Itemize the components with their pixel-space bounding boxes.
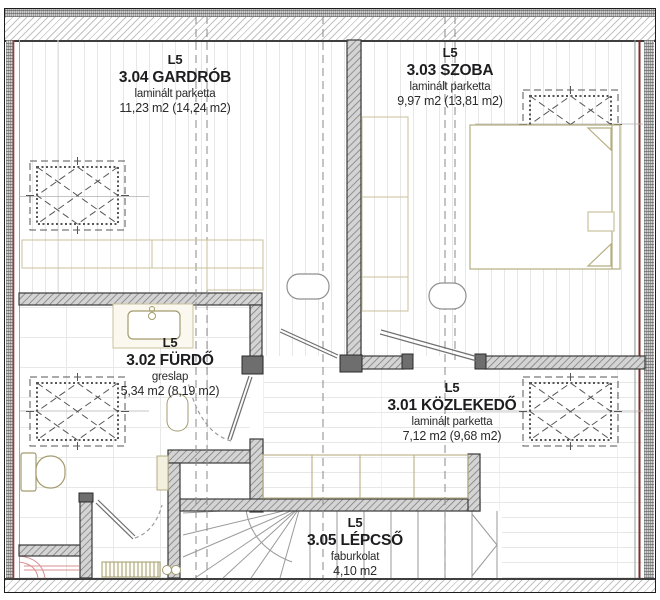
room-area: 11,23 m2 (14,24 m2): [75, 101, 275, 116]
room-area: 9,97 m2 (13,81 m2): [350, 94, 550, 109]
room-material: laminált parketta: [350, 80, 550, 94]
room-level: L5: [255, 515, 455, 531]
room-name: 3.03 SZOBA: [350, 61, 550, 80]
room-level: L5: [70, 335, 270, 351]
room-material: faburkolat: [255, 550, 455, 564]
room-label-kozlekedo: L5 3.01 KÖZLEKEDŐ laminált parketta 7,12…: [352, 380, 552, 444]
room-material: greslap: [70, 370, 270, 384]
room-area: 7,12 m2 (9,68 m2): [352, 429, 552, 444]
room-label-szoba: L5 3.03 SZOBA laminált parketta 9,97 m2 …: [350, 45, 550, 109]
room-level: L5: [352, 380, 552, 396]
room-area: 5,34 m2 (8,19 m2): [70, 384, 270, 399]
floor-plan: L5 3.04 GARDRÓB laminált parketta 11,23 …: [0, 0, 660, 600]
room-level: L5: [350, 45, 550, 61]
room-level: L5: [75, 52, 275, 68]
room-name: 3.01 KÖZLEKEDŐ: [352, 396, 552, 415]
room-material: laminált parketta: [352, 415, 552, 429]
room-area: 4,10 m2: [255, 564, 455, 579]
room-label-furdo: L5 3.02 FÜRDŐ greslap 5,34 m2 (8,19 m2): [70, 335, 270, 399]
room-name: 3.04 GARDRÓB: [75, 68, 275, 87]
room-label-gardrob: L5 3.04 GARDRÓB laminált parketta 11,23 …: [75, 52, 275, 116]
room-label-lepcso: L5 3.05 LÉPCSŐ faburkolat 4,10 m2: [255, 515, 455, 579]
room-name: 3.02 FÜRDŐ: [70, 351, 270, 370]
room-material: laminált parketta: [75, 87, 275, 101]
room-name: 3.05 LÉPCSŐ: [255, 531, 455, 550]
